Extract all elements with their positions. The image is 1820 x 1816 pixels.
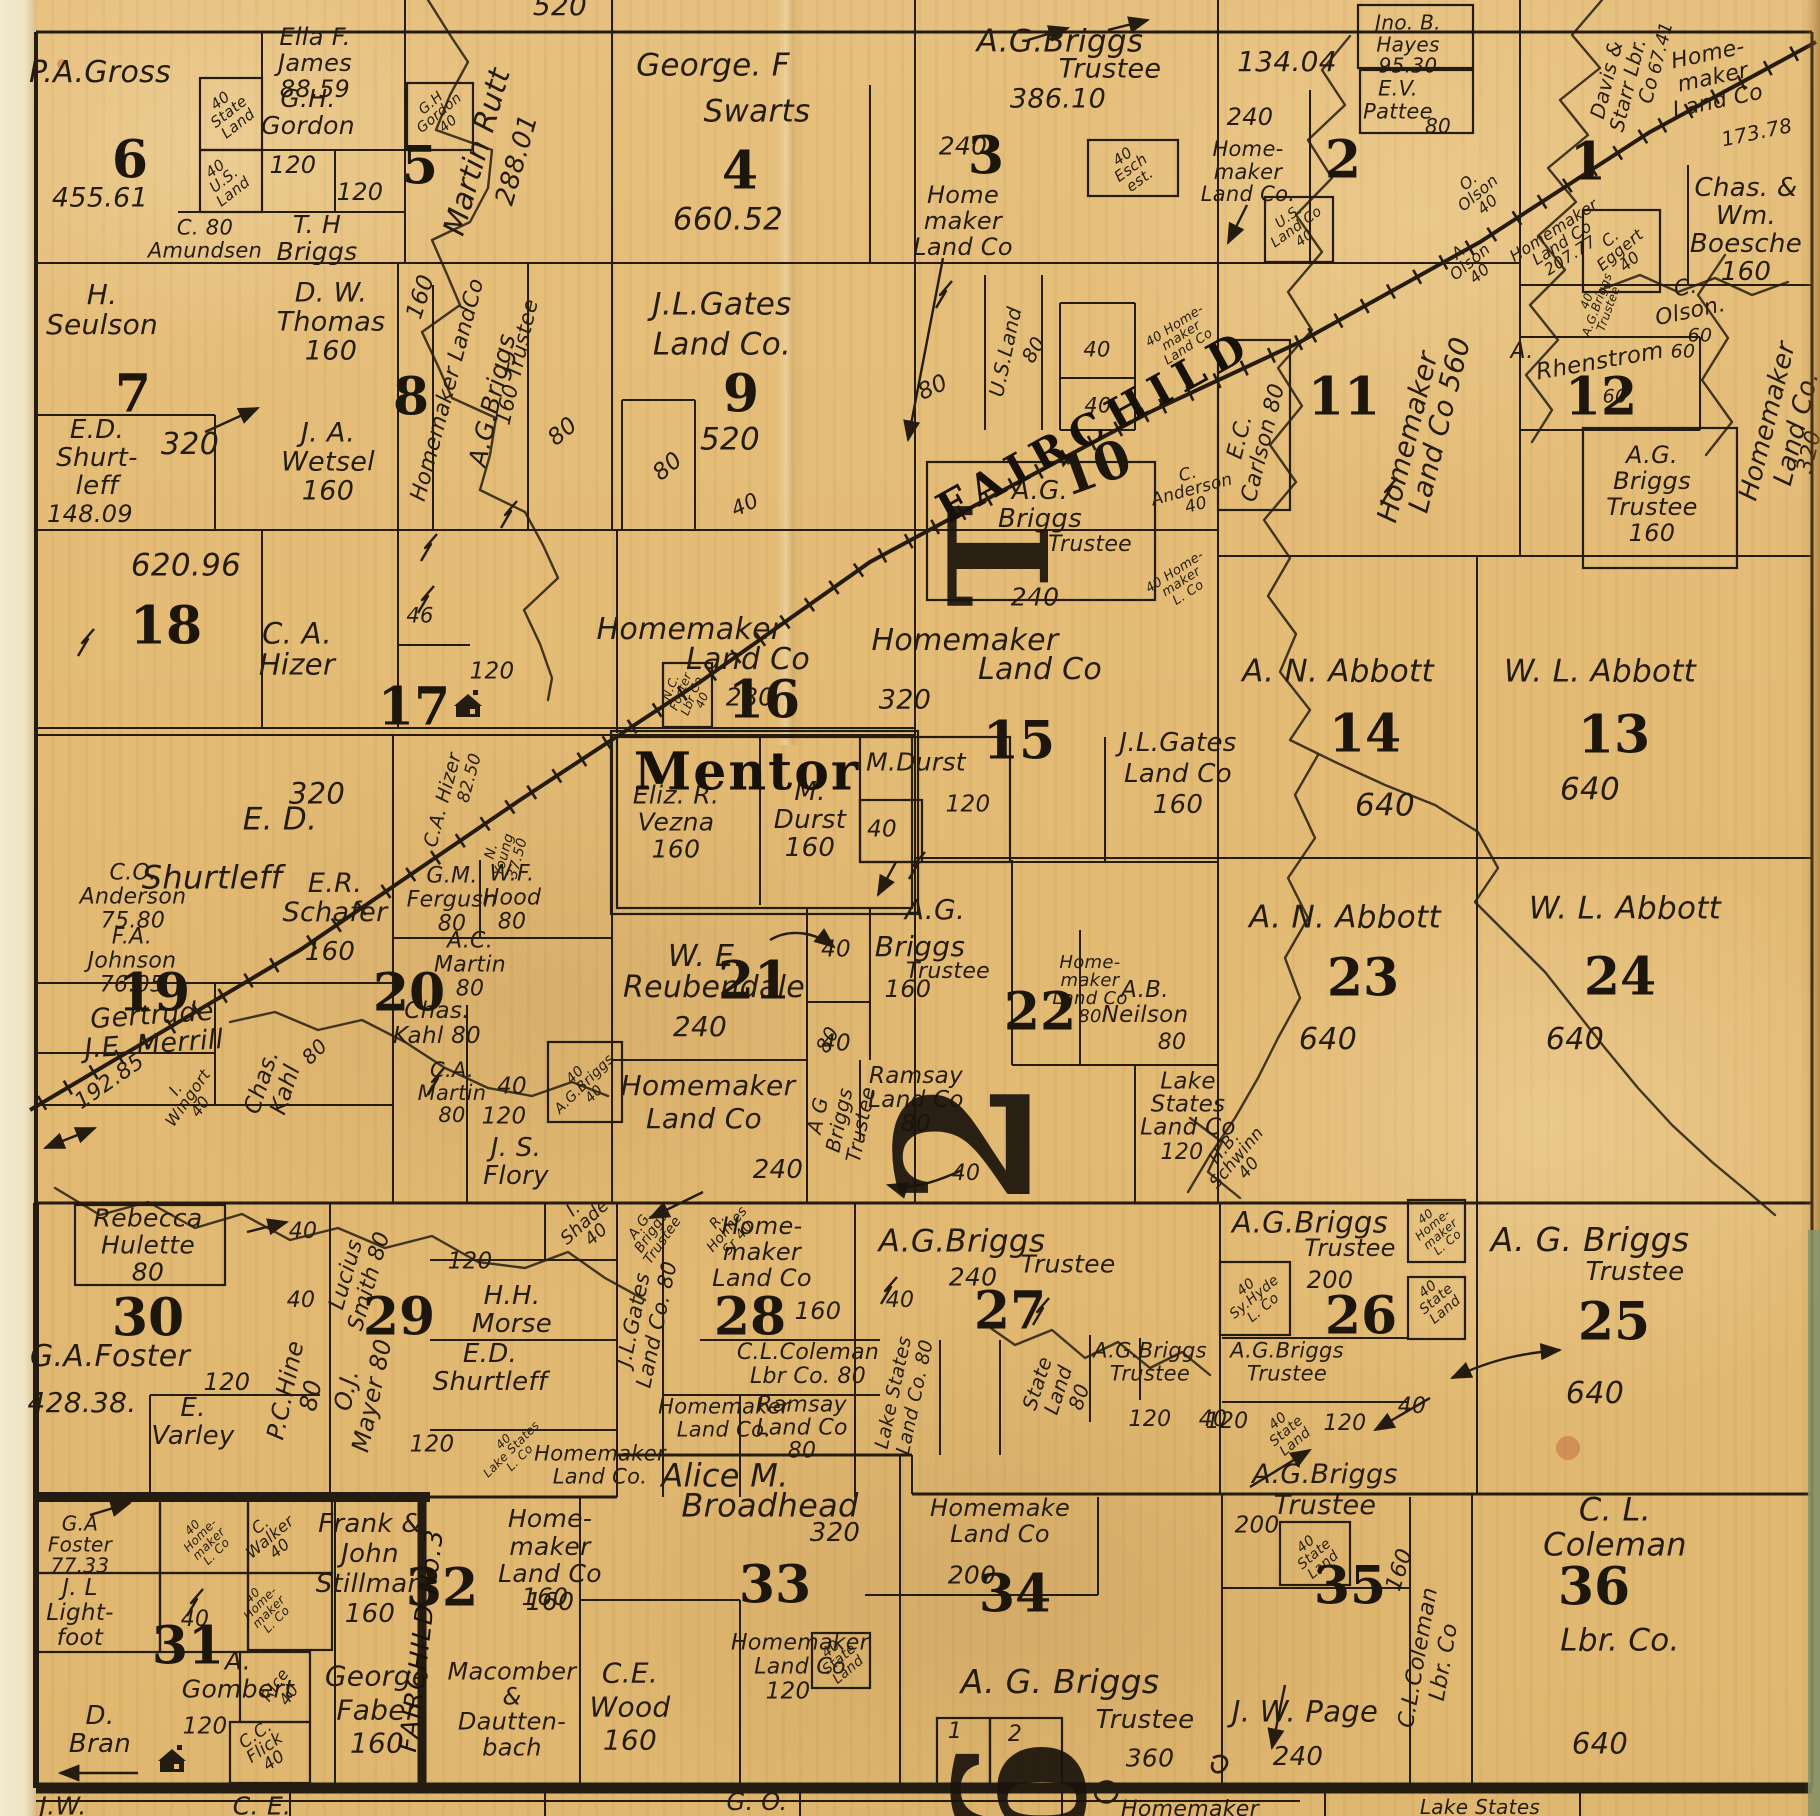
section-number: 11: [1308, 367, 1380, 428]
parcel-label: A.G.: [905, 895, 965, 925]
parcel-label: 120: [337, 180, 384, 206]
parcel-label: G.H. Gordon: [261, 85, 355, 139]
arrow: [45, 1128, 95, 1148]
parcel-label: 320: [289, 778, 345, 809]
parcel-label: 640: [1572, 1728, 1628, 1759]
parcel-label: Trustee: [1096, 1706, 1195, 1734]
parcel-label: 320: [161, 429, 219, 461]
parcel-label: Lake States: [1420, 1797, 1540, 1816]
parcel-label: C.L.Coleman Lbr Co. 80: [737, 1341, 879, 1389]
parcel-label: E.R. Schafer: [283, 869, 388, 927]
arrow: [878, 862, 896, 895]
parcel-label: C.E. Wood 160: [590, 1657, 671, 1758]
parcel-label: 120: [270, 153, 317, 179]
parcel-label: 428.38.: [28, 1388, 137, 1418]
parcel-label: A.G.Briggs Trustee: [1093, 1339, 1207, 1384]
parcel-label: 40: [867, 818, 897, 843]
parcel-label: J. A. Wetsel 160: [281, 418, 375, 505]
parcel-label: 160: [305, 938, 356, 966]
parcel-label: 40: [1083, 339, 1110, 362]
parcel-label: Homemaker: [1121, 1798, 1259, 1816]
paper-stain: [1556, 1436, 1580, 1460]
parcel-label: 120: [204, 1370, 251, 1396]
plat-map: 520P.A.Gross455.6140 State Land40 U.S. L…: [0, 0, 1820, 1816]
parcel-label: 640: [1566, 1378, 1624, 1410]
section-number: 36: [1558, 1557, 1630, 1618]
parcel-label: 120: [766, 1680, 811, 1705]
parcel-label: 120: [410, 1433, 455, 1458]
parcel-label: 120: [946, 793, 991, 818]
parcel-label: 520: [700, 423, 760, 456]
parcel-label: A. G. Briggs: [961, 1664, 1160, 1700]
parcel-label: E.D. Shurtleff: [433, 1340, 548, 1396]
arrow: [247, 1222, 287, 1232]
parcel-label: P.A.Gross: [29, 57, 171, 89]
house-window: [470, 709, 475, 714]
parcel-label: H.H. Morse: [472, 1282, 552, 1338]
arrow: [1452, 1350, 1560, 1378]
parcel-label: Land Co: [978, 654, 1102, 686]
section-number: 27: [974, 1281, 1046, 1342]
parcel-label: H. Seulson: [46, 280, 158, 340]
parcel-label: Trustee: [1059, 54, 1162, 83]
parcel-label: G.A Foster 77.33: [48, 1514, 112, 1577]
parcel-label: 120: [1206, 1410, 1249, 1434]
parcel-label: Rebecca Hulette 80: [94, 1205, 203, 1286]
parcel-label: 320: [810, 1519, 861, 1547]
parcel-label: Ramsay Land Co 80: [756, 1393, 848, 1462]
parcel-label: C.O. Anderson 75.80: [80, 861, 187, 932]
section-number: 8: [393, 367, 429, 428]
house-icon: [158, 1745, 186, 1772]
parcel-label: 240: [1227, 105, 1274, 131]
section-number: 21: [718, 951, 790, 1012]
parcel-label: J. S. Flory: [483, 1134, 549, 1190]
parcel-label: G. O.: [727, 1790, 788, 1816]
town-label-mentor: Mentor: [634, 742, 861, 803]
section-number: 7: [115, 364, 151, 425]
parcel-label: D. Bran: [69, 1702, 131, 1758]
parcel-label: Home- maker Land Co.: [1201, 138, 1295, 206]
parcel-label: A.B. Neilson: [1102, 978, 1189, 1028]
page-edge-green: [1808, 1230, 1820, 1816]
parcel-label: George. F: [636, 49, 790, 82]
parcel-label: Trustee: [1304, 1236, 1395, 1262]
house-icon: [454, 690, 482, 717]
parcel-label: 40: [289, 1220, 318, 1244]
parcel-label: Trustee: [1020, 1251, 1115, 1278]
section-number: 20: [373, 963, 445, 1024]
parcel-label: T. H Briggs: [277, 211, 358, 265]
parcel-label: C. 80 Amundsen: [148, 216, 262, 261]
parcel-label: 40: [1398, 1395, 1427, 1419]
section-number: 5: [402, 136, 438, 197]
section-number: 33: [739, 1555, 811, 1616]
section-number: 24: [1584, 947, 1656, 1008]
parcel-label: 520: [533, 0, 587, 21]
arrow: [908, 258, 943, 440]
parcel-label: Homemaker: [621, 1071, 796, 1101]
parcel-label: Trustee: [1586, 1258, 1685, 1286]
section-number: 2: [1325, 130, 1361, 191]
parcel-label: C. A. Hizer: [259, 619, 335, 682]
section-number: 17: [378, 677, 450, 738]
parcel-label: C. L. Coleman: [1513, 1492, 1718, 1561]
parcel-label: W. L. Abbott: [1529, 892, 1721, 925]
parcel-label: A.G. Briggs Trustee 160: [1606, 443, 1697, 547]
section-number: 15: [983, 711, 1055, 772]
section-number: 13: [1578, 705, 1650, 766]
parcel-label: J.W.: [39, 1793, 86, 1816]
survey-mark: [78, 629, 94, 656]
parcel-label: 40: [886, 1289, 915, 1313]
section-number: 35: [1314, 1556, 1386, 1617]
parcel-label: 640: [1299, 1024, 1357, 1056]
parcel-label: 320: [879, 685, 931, 714]
section-number: 16: [728, 670, 800, 731]
section-number: 3: [968, 126, 1004, 187]
parcel-label: 120: [448, 1250, 493, 1275]
section-number: 14: [1329, 704, 1401, 765]
parcel-label: 134.04: [1237, 47, 1337, 77]
parcel-label: E.D. Shurt- leff: [56, 416, 138, 500]
parcel-label: A. G. Briggs: [1491, 1222, 1690, 1258]
parcel-label: E. Varley: [151, 1394, 234, 1450]
parcel-label: A.: [1510, 340, 1533, 364]
parcel-label: 40: [497, 1075, 527, 1100]
section-number: 34: [979, 1564, 1051, 1625]
parcel-label: 240: [673, 1012, 727, 1042]
decorative-scribble: [1212, 1756, 1227, 1772]
parcel-label: 660.52: [673, 203, 783, 236]
section-number: 30: [112, 1288, 184, 1349]
parcel-label: J.L.Gates Land Co.: [652, 285, 791, 366]
section-number: 1: [1570, 132, 1606, 193]
parcel-label: 386.10: [1010, 84, 1106, 113]
parcel-label: C. E.: [233, 1793, 292, 1816]
parcel-label: 640: [1560, 773, 1620, 806]
parcel-label: 240: [1273, 1743, 1324, 1771]
section-number: 9: [723, 364, 759, 425]
parcel-label: 620.96: [131, 549, 241, 582]
section-number: 25: [1578, 1292, 1650, 1353]
section-number: 23: [1327, 948, 1399, 1009]
parcel-label: Jno. B. Hayes 95.30: [1375, 13, 1441, 78]
parcel-label: 120: [1324, 1412, 1367, 1436]
parcel-label: Homemaker Land Co.: [534, 1442, 666, 1487]
big-letter: 2: [873, 1078, 1058, 1207]
parcel-label: 360: [1126, 1745, 1175, 1772]
parcel-label: Land Co: [646, 1104, 762, 1134]
parcel-label: 640: [1355, 789, 1415, 822]
parcel-label: A. N. Abbott: [1249, 901, 1441, 934]
parcel-label: 640: [1546, 1024, 1604, 1056]
parcel-label: C.A. Martin 80: [418, 1059, 487, 1127]
parcel-label: J. W. Page: [1232, 1696, 1378, 1727]
parcel-label: Home maker Land Co: [913, 183, 1013, 261]
section-number: 12: [1565, 367, 1637, 428]
parcel-label: 160: [885, 977, 932, 1003]
parcel-label: W.F. Hood 80: [483, 862, 542, 933]
parcel-label: 80: [1425, 116, 1451, 138]
parcel-label: Macomber & Dautten- bach: [448, 1660, 577, 1761]
big-letter: 6: [932, 1737, 1112, 1816]
parcel-label: 200: [1235, 1514, 1280, 1539]
parcel-label: 40: [821, 938, 851, 963]
parcel-label: 120: [470, 660, 515, 685]
parcel-label: J. L Light- foot: [46, 1576, 114, 1650]
parcel-label: 160: [795, 1299, 842, 1325]
parcel-label: 46: [406, 605, 433, 628]
arrow: [1228, 205, 1247, 243]
parcel-label: M.Durst: [866, 749, 966, 776]
section-number: 29: [363, 1287, 435, 1348]
section-number: 19: [118, 963, 190, 1024]
parcel-label: 40: [287, 1289, 316, 1313]
parcel-label: W. L. Abbott: [1504, 655, 1696, 688]
parcel-label: Briggs: [875, 932, 965, 962]
parcel-label: 60: [1671, 342, 1696, 363]
section-number: 22: [1004, 982, 1076, 1043]
parcel-label: 148.09: [47, 502, 133, 528]
section-number: 28: [714, 1287, 786, 1348]
parcel-label: A. N. Abbott: [1242, 655, 1434, 688]
section-number: 31: [152, 1616, 224, 1677]
parcel-label: 240: [753, 1156, 804, 1184]
parcel-label: 120: [1161, 1141, 1204, 1165]
parcel-label: 120: [482, 1105, 527, 1130]
parcel-label: D. W. Thomas 160: [277, 278, 386, 365]
parcel-label: 120: [183, 1715, 228, 1740]
parcel-label: J.L.Gates Land Co 160: [1119, 728, 1236, 822]
section-number: 18: [130, 596, 202, 657]
parcel-label: 120: [1129, 1408, 1172, 1432]
house-window: [174, 1764, 179, 1769]
parcel-label: Lake States Land Co: [1140, 1071, 1236, 1140]
section-number: 4: [722, 141, 758, 202]
parcel-label: Swarts: [704, 95, 811, 128]
parcel-label: Lbr. Co.: [1560, 1624, 1679, 1657]
section-number: 6: [112, 130, 148, 191]
parcel-label: E.V. Pattee: [1363, 77, 1433, 122]
parcel-label: 160: [522, 1585, 569, 1611]
section-number: 26: [1325, 1286, 1397, 1347]
parcel-label: Home- maker Land Co: [712, 1214, 812, 1292]
parcel-label: Homemake Land Co: [930, 1496, 1070, 1548]
survey-mark: [421, 534, 437, 561]
parcel-label: Chas. & Wm. Boesche 160: [1690, 174, 1802, 286]
parcel-label: 80: [1158, 1031, 1187, 1055]
